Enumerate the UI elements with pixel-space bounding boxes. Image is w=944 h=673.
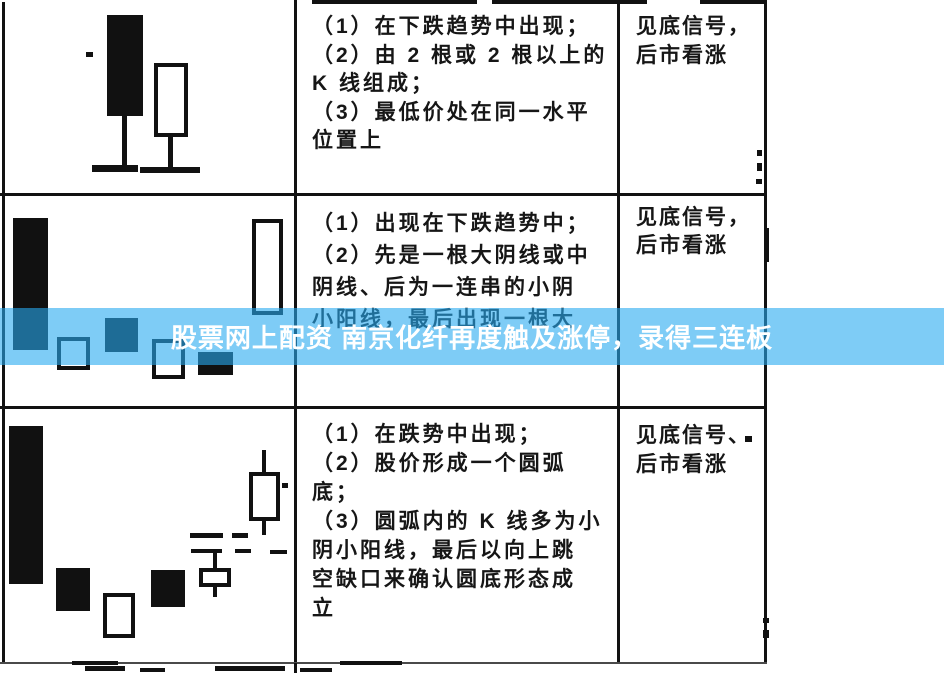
- text-line: （1）出现在下跌趋势中；: [312, 208, 614, 240]
- text-line: （3）最低价处在同一水平: [312, 99, 614, 128]
- signal-text-row2: 见底信号，后市看涨: [636, 204, 768, 260]
- noise-speck: [763, 618, 769, 623]
- signal-text-row1: 见底信号，后市看涨: [636, 12, 768, 70]
- noise-speck: [140, 668, 165, 672]
- table-row-divider: [0, 193, 767, 196]
- text-line: （1）在下跌趋势中出现；: [312, 13, 614, 42]
- noise-speck: [340, 661, 402, 665]
- text-line: 阴小阳线，最后以向上跳: [312, 536, 614, 565]
- text-line: 位置上: [312, 127, 614, 156]
- pattern-description-row1: （1）在下跌趋势中出现；（2）由 2 根或 2 根以上的K 线组成；（3）最低价…: [312, 13, 614, 156]
- text-line: （3）圆弧内的 K 线多为小: [312, 507, 614, 536]
- text-line: （2）由 2 根或 2 根以上的: [312, 42, 614, 71]
- pattern-description-row3: （1）在跌势中出现；（2）股价形成一个圆弧底；（3）圆弧内的 K 线多为小阴小阳…: [312, 420, 614, 623]
- noise-speck: [757, 150, 762, 156]
- noise-speck: [763, 630, 769, 638]
- text-line: 空缺口来确认圆底形态成: [312, 565, 614, 594]
- text-line: 见底信号，: [636, 12, 768, 41]
- table-row-divider: [0, 406, 767, 409]
- text-line: 后市看涨: [636, 232, 768, 260]
- text-line: （2）股价形成一个圆弧: [312, 449, 614, 478]
- text-line: 后市看涨: [636, 41, 768, 70]
- text-line: 后市看涨: [636, 450, 768, 479]
- text-line: （2）先是一根大阴线或中: [312, 240, 614, 272]
- noise-speck: [300, 668, 332, 672]
- text-line: 底；: [312, 478, 614, 507]
- candlestick-figure-row1: [5, 5, 294, 190]
- signal-text-row3: 见底信号、后市看涨: [636, 421, 768, 479]
- scanned-candlestick-table-page: （1）在下跌趋势中出现；（2）由 2 根或 2 根以上的K 线组成；（3）最低价…: [0, 0, 944, 673]
- noise-speck: [85, 666, 125, 671]
- candlestick-figure-row3: [5, 412, 294, 657]
- text-line: 立: [312, 594, 614, 623]
- text-line: 见底信号，: [636, 204, 768, 232]
- table-border-top: [700, 0, 766, 4]
- noise-speck: [757, 163, 762, 171]
- table-border-top: [492, 0, 647, 4]
- table-border-top: [312, 0, 477, 4]
- text-line: K 线组成；: [312, 70, 614, 99]
- ad-banner-text: 股票网上配资 南京化纤再度触及涨停，录得三连板: [171, 318, 773, 355]
- noise-speck: [756, 179, 762, 184]
- noise-speck: [215, 666, 285, 671]
- text-line: （1）在跌势中出现；: [312, 420, 614, 449]
- candlestick-figure-row2: [5, 200, 294, 400]
- noise-speck: [72, 661, 118, 665]
- ad-banner[interactable]: 股票网上配资 南京化纤再度触及涨停，录得三连板: [0, 308, 944, 365]
- text-line: 见底信号、: [636, 421, 768, 450]
- text-line: 阴线、后为一连串的小阴: [312, 272, 614, 304]
- table-border-tail: [294, 663, 297, 673]
